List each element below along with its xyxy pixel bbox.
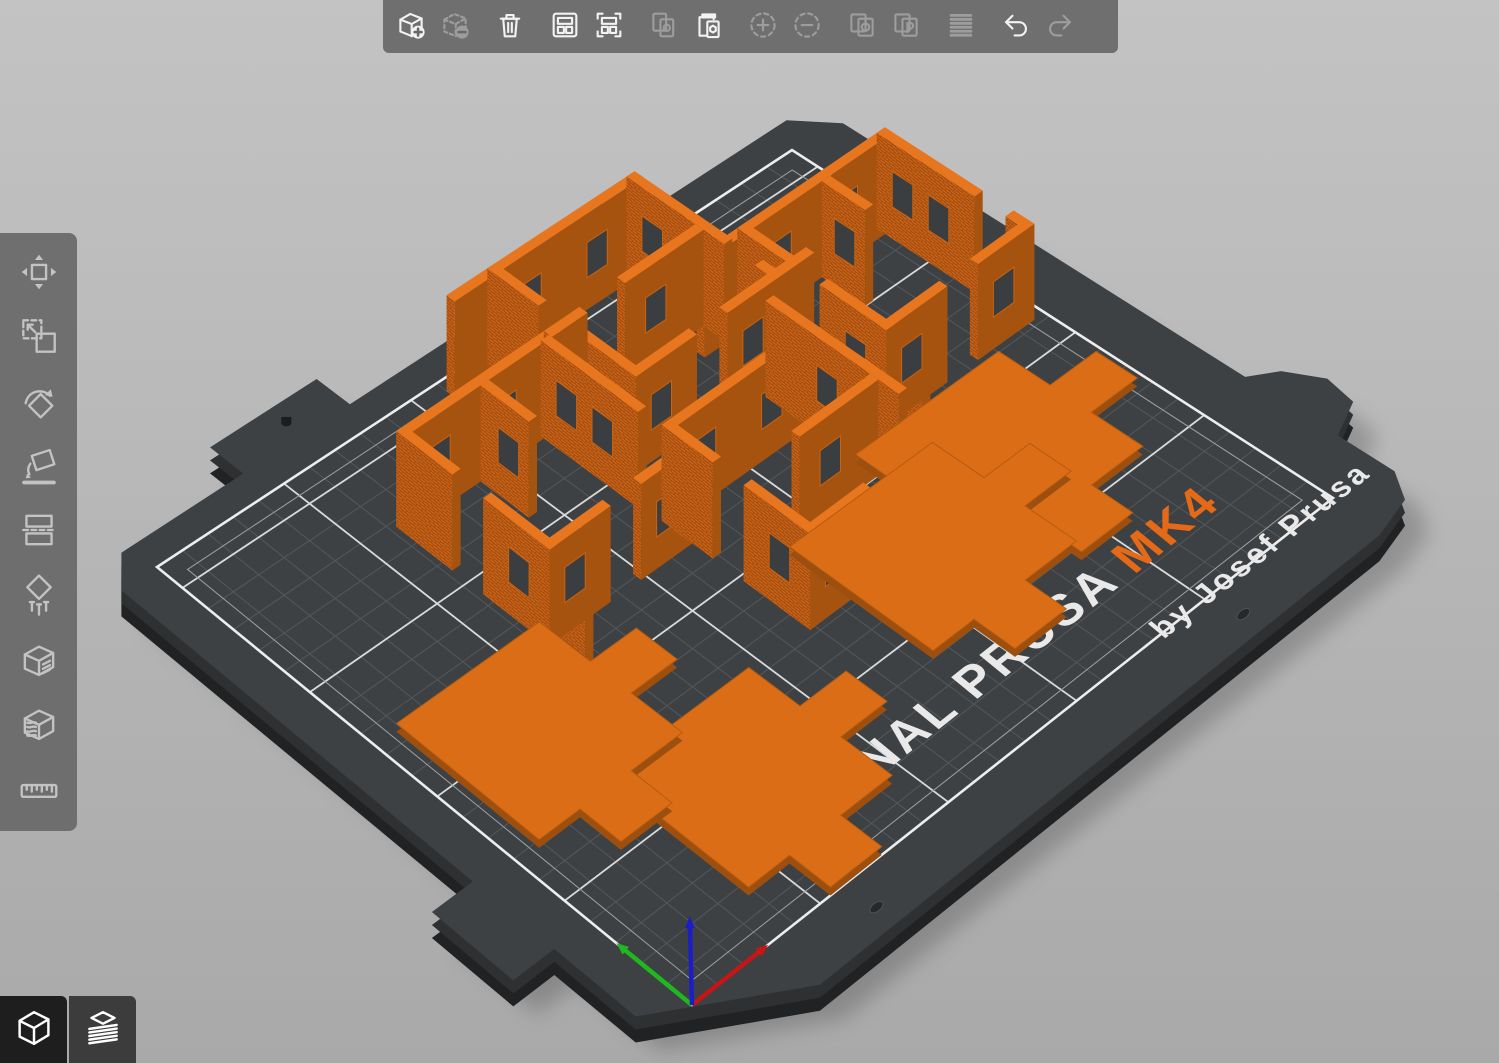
arrange-selection-button[interactable]: [587, 5, 631, 49]
add-instance-button: [741, 5, 785, 49]
toolbar-group: [840, 5, 928, 49]
redo-button: [1038, 5, 1082, 49]
split-objects-button: [840, 5, 884, 49]
view-preview-layers-button[interactable]: [69, 996, 136, 1063]
seam-icon: [17, 638, 61, 685]
delete-all-icon: [493, 8, 527, 45]
variable-layer-height-button: [939, 5, 983, 49]
gizmo-fdm-supports-button[interactable]: [11, 569, 67, 625]
arrange-icon: [548, 8, 582, 45]
axis-z: [690, 928, 692, 1005]
scale-icon: [17, 314, 61, 361]
gizmo-seam-button[interactable]: [11, 633, 67, 689]
fdm-supports-icon: [17, 573, 61, 620]
preview-layers-icon: [80, 1005, 126, 1054]
redo-icon: [1043, 8, 1077, 45]
gizmo-mmu-painting-button[interactable]: [11, 698, 67, 754]
copy-button: [642, 5, 686, 49]
delete-object-icon: [438, 8, 472, 45]
undo-icon: [999, 8, 1033, 45]
gizmo-move-button[interactable]: [11, 245, 67, 301]
undo-button[interactable]: [994, 5, 1038, 49]
copy-icon: [647, 8, 681, 45]
remove-instance-icon: [790, 8, 824, 45]
arrange-button[interactable]: [543, 5, 587, 49]
paste-icon: [691, 8, 725, 45]
add-object-icon: [394, 8, 428, 45]
gizmo-rotate-button[interactable]: [11, 375, 67, 431]
toolbar-group: [642, 5, 730, 49]
toolbar-group: [488, 5, 532, 49]
toolbar-group: [994, 5, 1082, 49]
variable-layer-height-icon: [944, 8, 978, 45]
rotate-icon: [17, 379, 61, 426]
measure-icon: [17, 767, 61, 814]
gizmo-place-on-face-button[interactable]: [11, 439, 67, 495]
cut-icon: [17, 508, 61, 555]
view-editor-3d-button[interactable]: [0, 996, 67, 1063]
gizmo-sidebar: [0, 233, 77, 831]
place-on-face-icon: [17, 444, 61, 491]
add-object-button[interactable]: [389, 5, 433, 49]
view-switch-bar: [0, 996, 136, 1063]
viewport-3d[interactable]: ORIGINAL PRUSA MK4by Josef Prusa: [0, 0, 1499, 1063]
split-parts-icon: [889, 8, 923, 45]
gizmo-measure-button[interactable]: [11, 763, 67, 819]
editor-3d-icon: [11, 1005, 57, 1054]
split-objects-icon: [845, 8, 879, 45]
toolbar-group: [741, 5, 829, 49]
toolbar-group: [543, 5, 631, 49]
top-toolbar: [383, 0, 1118, 53]
split-parts-button: [884, 5, 928, 49]
mmu-painting-icon: [17, 702, 61, 749]
add-instance-icon: [746, 8, 780, 45]
arrange-selection-icon: [592, 8, 626, 45]
toolbar-group: [939, 5, 983, 49]
gizmo-cut-button[interactable]: [11, 504, 67, 560]
toolbar-group: [389, 5, 477, 49]
gizmo-scale-button[interactable]: [11, 310, 67, 366]
delete-object-button: [433, 5, 477, 49]
remove-instance-button: [785, 5, 829, 49]
paste-button[interactable]: [686, 5, 730, 49]
delete-all-button[interactable]: [488, 5, 532, 49]
move-icon: [17, 250, 61, 297]
